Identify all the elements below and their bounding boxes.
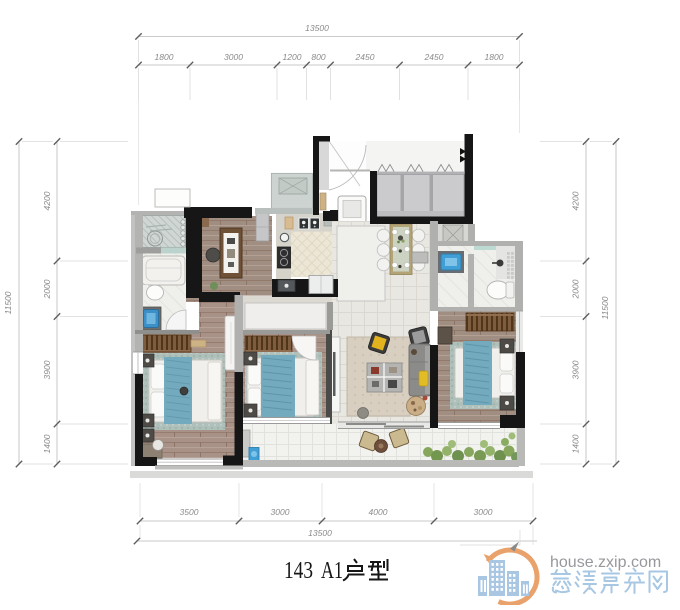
svg-text:1800: 1800	[485, 52, 504, 62]
svg-text:3000: 3000	[271, 507, 290, 517]
svg-text:13500: 13500	[305, 23, 329, 33]
svg-text:house.zxip.com: house.zxip.com	[550, 554, 661, 571]
svg-text:143: 143	[284, 558, 313, 584]
svg-text:4000: 4000	[369, 507, 388, 517]
svg-text:3500: 3500	[180, 507, 199, 517]
svg-text:800: 800	[311, 52, 325, 62]
svg-text:1200: 1200	[283, 52, 302, 62]
svg-text:2450: 2450	[424, 52, 444, 62]
svg-text:1400: 1400	[42, 434, 52, 453]
svg-text:A1: A1	[321, 558, 343, 584]
svg-text:2450: 2450	[355, 52, 375, 62]
svg-text:3000: 3000	[224, 52, 243, 62]
svg-text:1400: 1400	[571, 434, 581, 453]
svg-text:3900: 3900	[571, 360, 581, 379]
svg-text:11500: 11500	[600, 296, 610, 319]
svg-text:3900: 3900	[42, 360, 52, 379]
svg-text:11500: 11500	[3, 291, 13, 314]
svg-text:2000: 2000	[42, 279, 52, 299]
svg-text:4200: 4200	[42, 191, 52, 210]
svg-text:2000: 2000	[571, 279, 581, 299]
svg-text:3000: 3000	[474, 507, 493, 517]
svg-text:13500: 13500	[308, 528, 332, 538]
svg-text:1800: 1800	[155, 52, 174, 62]
svg-text:4200: 4200	[571, 191, 581, 210]
